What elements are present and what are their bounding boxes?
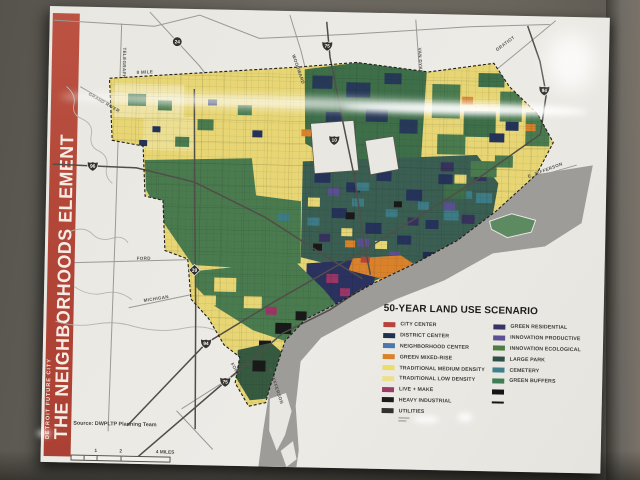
svg-text:39: 39 [192, 268, 198, 274]
legend-swatch [382, 365, 394, 370]
scale-tick-label: 4 MILES [156, 450, 175, 455]
svg-text:94: 94 [542, 88, 548, 94]
legend-label: TRADITIONAL MEDIUM DENSITY [399, 365, 484, 373]
legend-swatch [493, 324, 505, 329]
legend-swatch [492, 389, 504, 394]
legend-swatch [382, 387, 394, 392]
legend-swatch [383, 344, 395, 349]
legend-label: TRADITIONAL LOW DENSITY [399, 376, 475, 384]
legend-label: HEAVY INDUSTRIAL [399, 397, 452, 404]
legend-label: DISTRICT CENTER [400, 333, 449, 340]
legend-label: NEIGHBORHOOD CENTER [400, 343, 469, 350]
highway-shield: 24 [172, 37, 182, 47]
legend-column-left: CITY CENTER DISTRICT CENTER NEIGHBORHOOD… [381, 319, 493, 425]
legend-label: LARGE PARK [510, 356, 546, 363]
legend-item [492, 397, 594, 410]
legend-swatch [493, 335, 505, 340]
legend-label: GREEN BUFFERS [509, 378, 555, 385]
legend-swatch [493, 357, 505, 362]
legend-swatch [382, 408, 394, 413]
photo-scene: DETROIT FUTURE CITY THE NEIGHBORHOODS EL… [0, 0, 640, 480]
legend-swatch [492, 367, 504, 372]
legend-label: INNOVATION PRODUCTIVE [510, 335, 581, 342]
highway-shield: 75 [322, 41, 333, 51]
legend-label: GREEN RESIDENTIAL [510, 324, 567, 331]
road-label: VAN DYKE [417, 48, 423, 74]
legend-label: GREEN MIXED-RISE [400, 354, 453, 361]
highway-shield: 94 [539, 86, 550, 96]
legend-swatch [493, 346, 505, 351]
road-label: TELEGRAPH [121, 48, 127, 79]
road-label: 8 MILE [136, 69, 153, 75]
wall-corner-seam [606, 0, 640, 480]
legend-label: INNOVATION ECOLOGICAL [510, 346, 581, 353]
legend-label: CITY CENTER [400, 322, 436, 329]
legend-swatch [383, 333, 395, 338]
legend-column-right: GREEN RESIDENTIAL INNOVATION PRODUCTIVE … [491, 321, 595, 427]
legend-swatch [492, 401, 504, 404]
svg-text:24: 24 [175, 39, 181, 45]
svg-text:75: 75 [222, 379, 228, 385]
poster: DETROIT FUTURE CITY THE NEIGHBORHOODS EL… [40, 6, 609, 474]
legend-swatch [383, 322, 395, 327]
highway-shield: 96 [87, 161, 98, 171]
legend: 50-YEAR LAND USE SCENARIO CITY CENTER DI… [381, 303, 595, 427]
legend-label: LIVE + MAKE [399, 387, 433, 394]
legend-swatch [382, 398, 394, 403]
legend-swatch [492, 378, 504, 383]
svg-text:75: 75 [324, 43, 330, 49]
road-label: FORD [137, 256, 152, 261]
legend-swatch [382, 376, 394, 381]
legend-swatch [383, 354, 395, 359]
svg-text:94: 94 [203, 341, 209, 347]
legend-label: CEMETERY [509, 367, 539, 374]
legend-item: UTILITIES [381, 405, 491, 418]
road-label: GRATIOT [495, 35, 516, 52]
legend-label: UTILITIES [399, 408, 425, 415]
svg-text:10: 10 [332, 138, 338, 144]
svg-text:96: 96 [90, 164, 96, 170]
scale-bar-segments [70, 455, 170, 463]
legend-footnote-marks [398, 418, 491, 424]
scale-tick-label: 1 [94, 449, 97, 454]
scale-tick-label: 2 [119, 449, 122, 454]
